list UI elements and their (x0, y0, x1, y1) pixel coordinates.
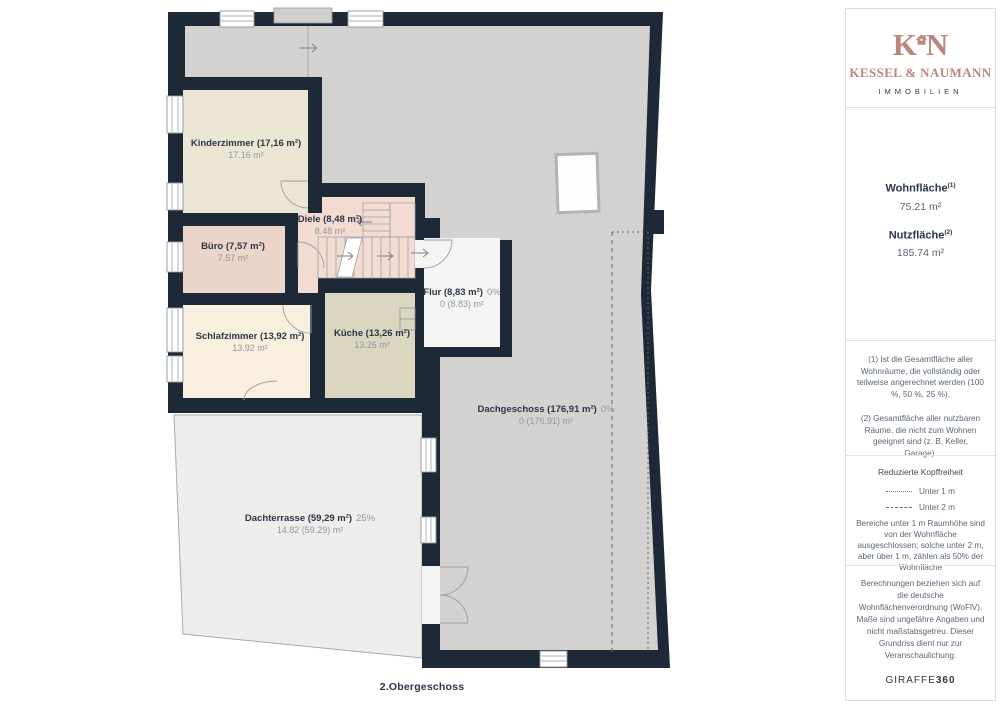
label-kinderzimmer: Kinderzimmer (17,16 m²) (191, 138, 301, 149)
legend-under-2m: Unter 2 m (853, 502, 988, 513)
label-diele: Diele (8,48 m²) (298, 214, 362, 225)
giraffe360-watermark: GIRAFFE360 (856, 674, 985, 689)
label-diele-area: 8.48 m² (315, 226, 346, 236)
footnote-1: (1) Ist die Gesamtfläche aller Wohnräume… (856, 354, 985, 400)
brand-name: KESSEL & NAUMANN (849, 65, 991, 81)
window-top-2 (348, 11, 383, 27)
label-schlafzimmer: Schlafzimmer (13,92 m²) (196, 331, 305, 342)
label-dachterrasse-area: 14.82 (59.29) m² (277, 525, 344, 535)
label-kueche-area: 13.26 m² (354, 340, 390, 350)
window-bottom (540, 651, 567, 667)
floor-title: 2.Obergeschoss (322, 681, 522, 693)
window-top-1 (220, 11, 254, 27)
room-dachterrasse (174, 415, 422, 658)
nutzflaeche-value: 185.74 m² (846, 247, 995, 259)
brand-card: K N KESSEL & NAUMANN IMMOBILIEN (846, 9, 995, 107)
headroom-legend: Reduzierte Kopffreiheit Unter 1 m Unter … (846, 455, 995, 565)
info-sidebar: K N KESSEL & NAUMANN IMMOBILIEN Wohnfläc… (845, 8, 996, 701)
label-schlafzimmer-area: 13.92 m² (232, 343, 268, 353)
label-dachgeschoss: Dachgeschoss (176,91 m²)0% (477, 404, 615, 415)
footnotes: (1) Ist die Gesamtfläche aller Wohnräume… (846, 340, 995, 455)
floor-plan: Kinderzimmer (17,16 m²) 17.16 m² Büro (7… (160, 5, 695, 675)
brand-logo: K N (893, 20, 949, 60)
nutzflaeche-label: Nutzfläche(2) (846, 229, 995, 242)
door-top-sliding (274, 8, 332, 23)
skylight (556, 153, 599, 212)
label-flur: Flur (8,83 m²)0% (423, 287, 501, 298)
wohnflaeche-value: 75.21 m² (846, 201, 995, 213)
label-buero-area: 7.57 m² (218, 253, 249, 263)
headroom-title: Reduzierte Kopffreiheit (853, 467, 988, 478)
area-metrics: Wohnfläche(1) 75.21 m² Nutzfläche(2) 185… (846, 107, 995, 340)
legend-under-1m: Unter 1 m (853, 486, 988, 497)
dotted-line-sample (886, 491, 912, 492)
label-kinderzimmer-area: 17.16 m² (228, 150, 264, 160)
dashed-line-sample (886, 507, 912, 508)
logo-letter-n: N (926, 29, 948, 60)
page: Kinderzimmer (17,16 m²) 17.16 m² Büro (7… (0, 0, 1000, 707)
brand-subtitle: IMMOBILIEN (878, 87, 962, 96)
label-buero: Büro (7,57 m²) (201, 241, 265, 252)
label-kueche: Küche (13,26 m²) (334, 328, 410, 339)
disclaimer-text: Berechnungen beziehen sich auf die deuts… (856, 578, 985, 661)
label-flur-area: 0 (8.83) m² (440, 299, 484, 309)
label-dachgeschoss-area: 0 (176.91) m² (519, 416, 573, 426)
footnote-2: (2) Gesamtfläche aller nutzbaren Räume, … (856, 413, 985, 459)
wohnflaeche-label: Wohnfläche(1) (846, 182, 995, 195)
label-dachterrasse: Dachterrasse (59,29 m²)25% (245, 513, 376, 524)
logo-letter-k: K (893, 29, 917, 60)
disclaimer: Berechnungen beziehen sich auf die deuts… (846, 565, 995, 700)
